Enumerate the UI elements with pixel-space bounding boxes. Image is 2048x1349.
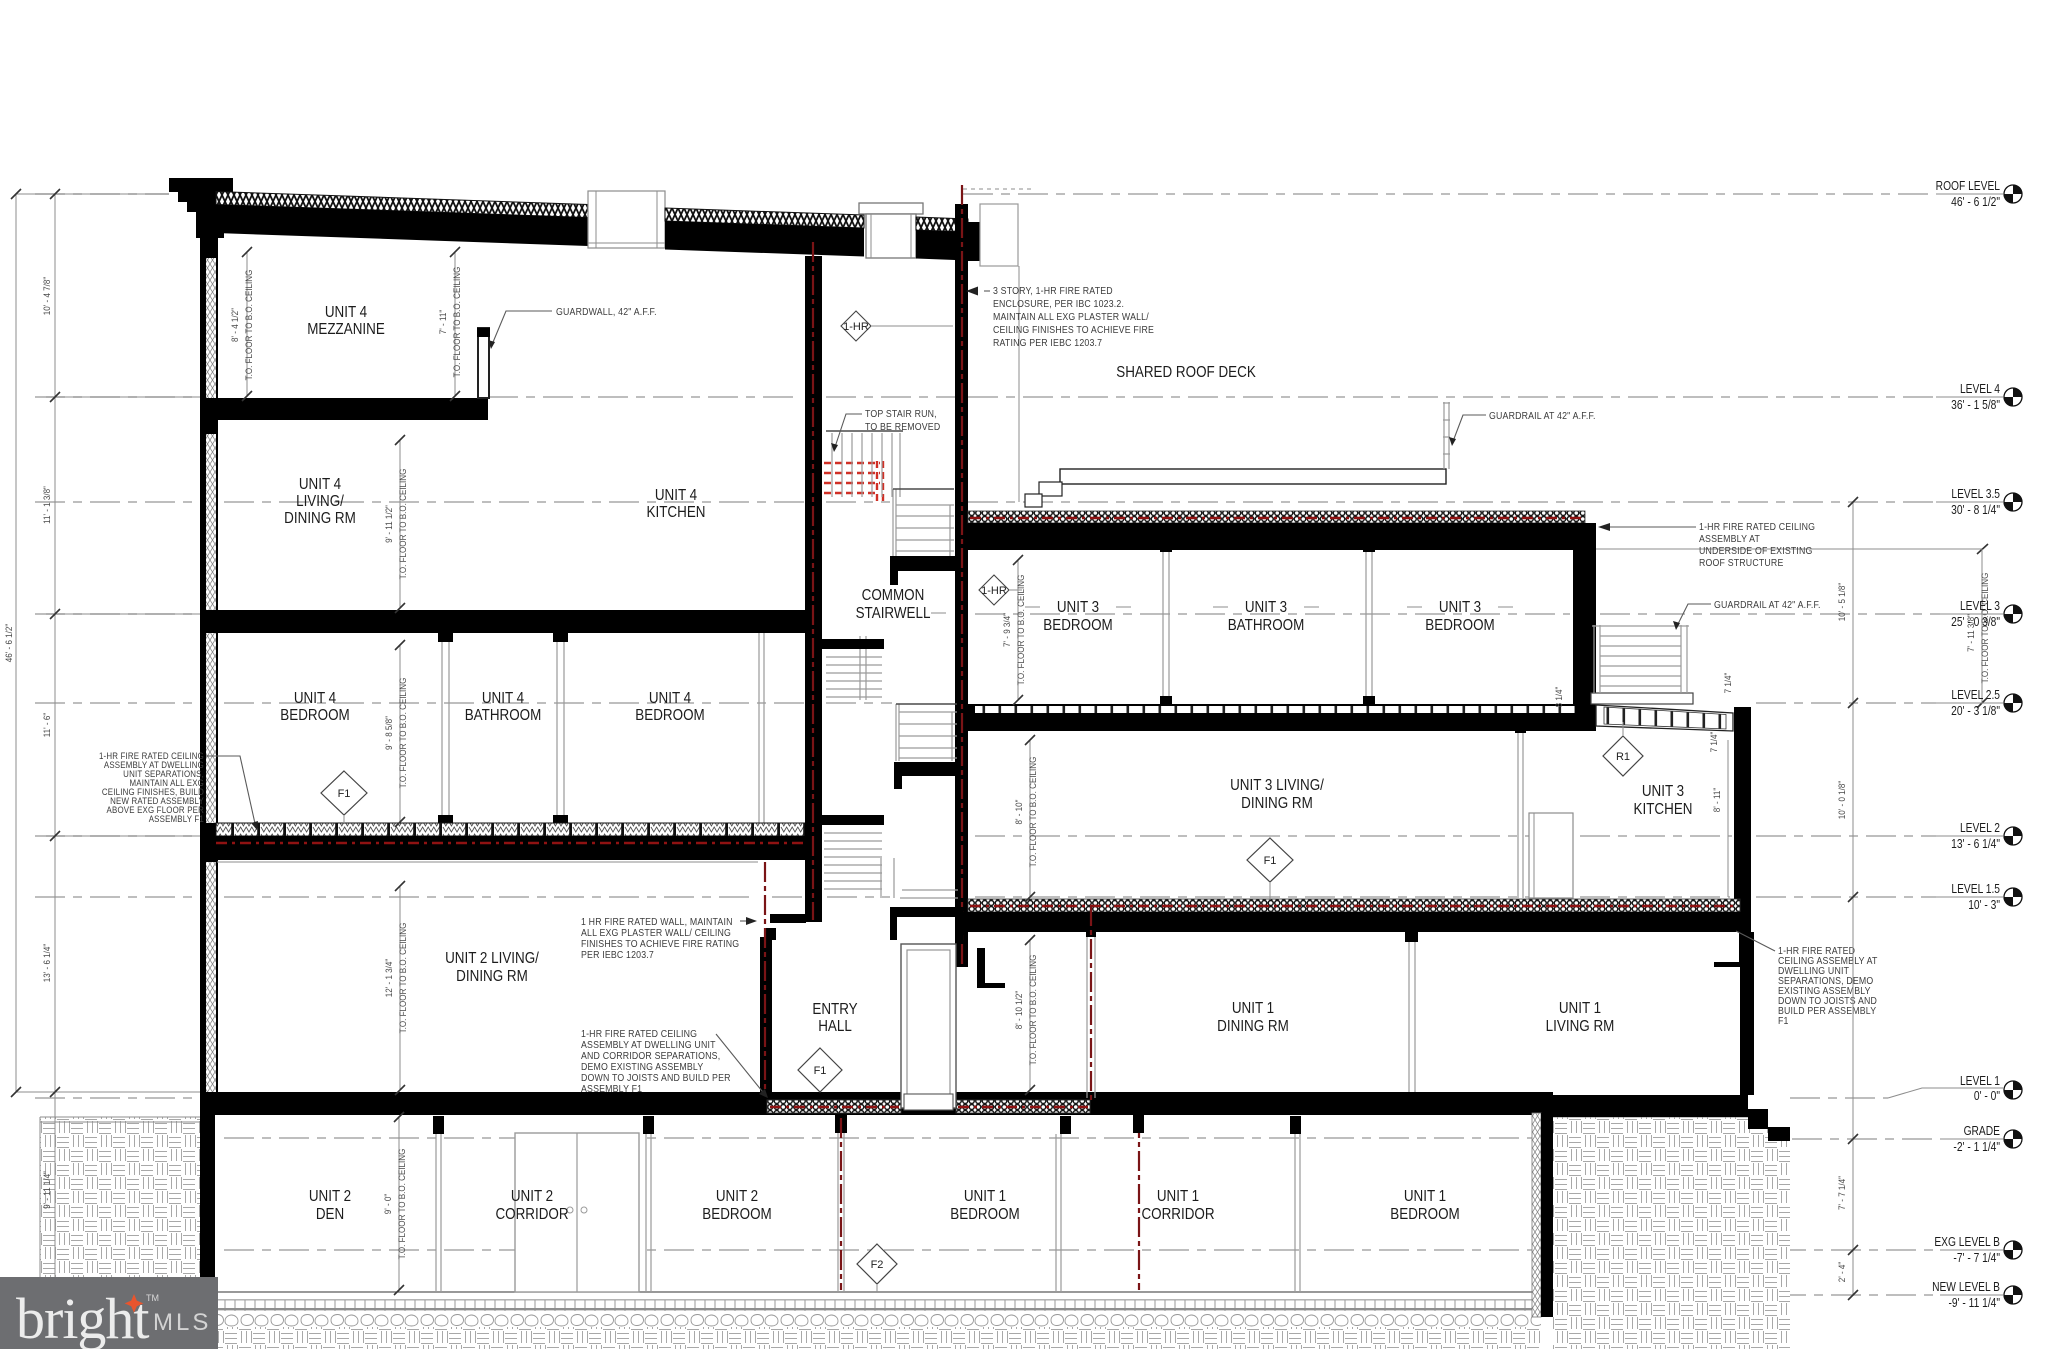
svg-text:-2' - 1 1/4": -2' - 1 1/4" [1953, 1141, 2000, 1154]
svg-text:-7' - 7 1/4": -7' - 7 1/4" [1953, 1252, 2000, 1265]
svg-text:BEDROOM: BEDROOM [1425, 617, 1494, 634]
svg-text:8' - 10": 8' - 10" [1013, 799, 1024, 824]
svg-text:LEVEL 1: LEVEL 1 [1960, 1075, 2000, 1088]
svg-text:-9' - 11 1/4": -9' - 11 1/4" [1948, 1297, 2000, 1310]
svg-text:1-HR: 1-HR [981, 585, 1007, 597]
svg-text:CEILING FINISHES TO ACHIEVE FI: CEILING FINISHES TO ACHIEVE FIRE [993, 323, 1154, 335]
svg-text:T.O. FLOOR TO B.O. CEILING: T.O. FLOOR TO B.O. CEILING [396, 1148, 407, 1259]
svg-text:TOP STAIR RUN,: TOP STAIR RUN, [865, 407, 937, 419]
svg-text:R1: R1 [1616, 751, 1630, 763]
svg-text:LEVEL 2.5: LEVEL 2.5 [1951, 689, 2000, 702]
svg-text:LEVEL 2: LEVEL 2 [1960, 822, 2000, 835]
svg-text:STAIRWELL: STAIRWELL [856, 605, 931, 622]
svg-text:13' - 6 1/4": 13' - 6 1/4" [41, 944, 52, 982]
svg-text:9' - 11 1/2": 9' - 11 1/2" [383, 505, 394, 543]
svg-text:UNIT 1: UNIT 1 [1232, 1000, 1274, 1017]
svg-text:UNIT 3: UNIT 3 [1642, 783, 1684, 800]
svg-text:ENTRY: ENTRY [812, 1001, 857, 1018]
svg-text:BATHROOM: BATHROOM [1228, 617, 1305, 634]
svg-text:UNIT 1: UNIT 1 [964, 1188, 1006, 1205]
svg-text:ROOF LEVEL: ROOF LEVEL [1936, 180, 2000, 193]
svg-text:10' - 4 7/8": 10' - 4 7/8" [41, 277, 52, 315]
svg-text:ASSEMBLY AT: ASSEMBLY AT [1699, 532, 1760, 544]
svg-text:GUARDRAIL AT 42" A.F.F.: GUARDRAIL AT 42" A.F.F. [1714, 598, 1821, 610]
svg-text:36' - 1 5/8": 36' - 1 5/8" [1951, 399, 2000, 412]
svg-text:LEVEL 3.5: LEVEL 3.5 [1951, 488, 2000, 501]
svg-text:F2: F2 [871, 1259, 884, 1271]
svg-text:UNIT 3: UNIT 3 [1439, 599, 1481, 616]
svg-text:BEDROOM: BEDROOM [635, 707, 704, 724]
svg-text:T.O. FLOOR TO B.O. CEILING: T.O. FLOOR TO B.O. CEILING [1027, 954, 1038, 1065]
svg-text:7' - 7 1/4": 7' - 7 1/4" [1836, 1176, 1847, 1210]
svg-text:46' - 6 1/2": 46' - 6 1/2" [1951, 196, 2000, 209]
svg-text:NEW LEVEL B: NEW LEVEL B [1932, 1281, 2000, 1294]
svg-text:T.O. FLOOR TO B.O. CEILING: T.O. FLOOR TO B.O. CEILING [397, 468, 408, 579]
svg-text:UNIT 4: UNIT 4 [655, 487, 697, 504]
svg-text:GRADE: GRADE [1964, 1125, 2001, 1138]
svg-text:7 1/4": 7 1/4" [1722, 673, 1733, 694]
svg-text:10' - 0 1/8": 10' - 0 1/8" [1836, 781, 1847, 819]
svg-text:7 1/4": 7 1/4" [1708, 732, 1719, 753]
svg-text:UNIT 4: UNIT 4 [299, 476, 341, 493]
svg-text:UNIT 1: UNIT 1 [1559, 1000, 1601, 1017]
svg-text:10' - 3": 10' - 3" [1968, 899, 2000, 912]
svg-text:DINING RM: DINING RM [1217, 1018, 1289, 1035]
svg-text:ALL EXG PLASTER WALL/ CEILING: ALL EXG PLASTER WALL/ CEILING [581, 926, 731, 938]
svg-text:UNIT 2 LIVING/: UNIT 2 LIVING/ [445, 950, 540, 967]
svg-text:TM: TM [146, 1293, 159, 1303]
svg-text:9' - 0": 9' - 0" [382, 1194, 393, 1215]
svg-text:7' - 9 3/4": 7' - 9 3/4" [1001, 613, 1012, 647]
svg-text:LEVEL 4: LEVEL 4 [1960, 383, 2001, 396]
svg-text:UNIT 4: UNIT 4 [325, 304, 367, 321]
svg-text:MAINTAIN ALL EXG PLASTER WALL/: MAINTAIN ALL EXG PLASTER WALL/ [993, 310, 1149, 322]
svg-text:CORRIDOR: CORRIDOR [495, 1206, 568, 1223]
svg-text:7' - 11": 7' - 11" [437, 310, 448, 334]
svg-text:UNIT 2: UNIT 2 [511, 1188, 553, 1205]
svg-text:30' - 8 1/4": 30' - 8 1/4" [1951, 504, 2000, 517]
svg-text:UNIT 3 LIVING/: UNIT 3 LIVING/ [1230, 777, 1325, 794]
svg-text:9' - 8 5/8": 9' - 8 5/8" [383, 716, 394, 750]
svg-text:LIVING RM: LIVING RM [1546, 1018, 1615, 1035]
svg-text:ASSEMBLY F1: ASSEMBLY F1 [581, 1082, 642, 1094]
svg-text:CORRIDOR: CORRIDOR [1141, 1206, 1214, 1223]
svg-text:1-HR FIRE RATED CEILING: 1-HR FIRE RATED CEILING [1699, 520, 1815, 532]
svg-text:11' - 1 3/8": 11' - 1 3/8" [41, 486, 52, 524]
svg-text:F1: F1 [1778, 1014, 1789, 1026]
svg-text:FINISHES TO ACHIEVE FIRE RATIN: FINISHES TO ACHIEVE FIRE RATING [581, 937, 739, 949]
svg-text:LIVING/: LIVING/ [296, 493, 345, 510]
svg-text:8' - 10 1/2": 8' - 10 1/2" [1013, 991, 1024, 1029]
svg-text:DEN: DEN [316, 1206, 344, 1223]
svg-text:BEDROOM: BEDROOM [702, 1206, 771, 1223]
svg-text:LEVEL 3: LEVEL 3 [1960, 600, 2000, 613]
svg-text:T.O. FLOOR TO B.O. CEILING: T.O. FLOOR TO B.O. CEILING [1015, 574, 1026, 685]
svg-text:AND CORRIDOR SEPARATIONS,: AND CORRIDOR SEPARATIONS, [581, 1049, 720, 1061]
svg-text:COMMON: COMMON [862, 587, 925, 604]
svg-text:BEDROOM: BEDROOM [1390, 1206, 1459, 1223]
svg-text:BEDROOM: BEDROOM [280, 707, 349, 724]
svg-text:HALL: HALL [818, 1018, 852, 1035]
svg-text:UNIT 1: UNIT 1 [1157, 1188, 1199, 1205]
svg-text:UNIT 4: UNIT 4 [294, 690, 336, 707]
svg-text:UNIT 3: UNIT 3 [1057, 599, 1099, 616]
svg-text:DEMO EXISTING ASSEMBLY: DEMO EXISTING ASSEMBLY [581, 1060, 704, 1072]
svg-text:8' - 4 1/2": 8' - 4 1/2" [229, 308, 240, 342]
svg-text:BEDROOM: BEDROOM [1043, 617, 1112, 634]
svg-text:T.O. FLOOR TO B.O. CEILING: T.O. FLOOR TO B.O. CEILING [397, 922, 408, 1033]
svg-text:SHARED ROOF DECK: SHARED ROOF DECK [1116, 364, 1256, 381]
svg-text:UNIT 2: UNIT 2 [716, 1188, 758, 1205]
svg-text:T.O. FLOOR TO B.O. CEILING: T.O. FLOOR TO B.O. CEILING [451, 266, 462, 377]
svg-text:ASSEMBLY F1: ASSEMBLY F1 [149, 814, 204, 825]
svg-text:DINING RM: DINING RM [1241, 795, 1313, 812]
svg-text:BEDROOM: BEDROOM [950, 1206, 1019, 1223]
svg-text:ASSEMBLY AT DWELLING UNIT: ASSEMBLY AT DWELLING UNIT [581, 1038, 716, 1050]
svg-text:1 HR FIRE RATED WALL, MAINTAIN: 1 HR FIRE RATED WALL, MAINTAIN [581, 915, 733, 927]
svg-text:9' - 11 1/4": 9' - 11 1/4" [41, 1171, 52, 1209]
svg-text:ENCLOSURE, PER IBC 1023.2.: ENCLOSURE, PER IBC 1023.2. [993, 297, 1124, 309]
svg-text:F1: F1 [338, 788, 351, 800]
svg-text:13' - 6 1/4": 13' - 6 1/4" [1951, 838, 2000, 851]
svg-text:GUARDRAIL AT 42" A.F.F.: GUARDRAIL AT 42" A.F.F. [1489, 409, 1596, 421]
svg-text:8 1/4": 8 1/4" [1553, 687, 1564, 708]
svg-text:LEVEL 1.5: LEVEL 1.5 [1951, 883, 2000, 896]
svg-text:BUILD PER ASSEMBLY: BUILD PER ASSEMBLY [1778, 1004, 1877, 1016]
svg-text:UNIT 4: UNIT 4 [649, 690, 691, 707]
svg-text:MEZZANINE: MEZZANINE [307, 321, 385, 338]
svg-text:20' - 3 1/8": 20' - 3 1/8" [1951, 705, 2000, 718]
svg-text:1-HR FIRE RATED CEILING: 1-HR FIRE RATED CEILING [581, 1027, 697, 1039]
svg-text:T.O. FLOOR TO B.O. CEILING: T.O. FLOOR TO B.O. CEILING [397, 677, 408, 788]
svg-text:12' - 1 3/4": 12' - 1 3/4" [383, 959, 394, 997]
svg-text:8' - 11": 8' - 11" [1711, 788, 1722, 812]
svg-text:F1: F1 [814, 1065, 827, 1077]
svg-text:46' - 6 1/2": 46' - 6 1/2" [3, 624, 14, 662]
svg-text:ROOF STRUCTURE: ROOF STRUCTURE [1699, 556, 1783, 568]
svg-text:2' - 4": 2' - 4" [1836, 1262, 1847, 1283]
svg-text:GUARDWALL, 42" A.F.F.: GUARDWALL, 42" A.F.F. [556, 305, 657, 317]
svg-text:0' - 0": 0' - 0" [1974, 1090, 2000, 1103]
svg-text:T.O. FLOOR TO B.O. CEILING: T.O. FLOOR TO B.O. CEILING [1027, 756, 1038, 867]
svg-text:T.O. FLOOR TO B.O. CEILING: T.O. FLOOR TO B.O. CEILING [243, 269, 254, 380]
svg-text:UNDERSIDE OF EXISTING: UNDERSIDE OF EXISTING [1699, 544, 1813, 556]
svg-text:25' - 0 3/8": 25' - 0 3/8" [1951, 616, 2000, 629]
svg-text:MLS: MLS [153, 1309, 211, 1336]
svg-text:bright: bright [16, 1286, 149, 1349]
svg-text:RATING PER IEBC 1203.7: RATING PER IEBC 1203.7 [993, 336, 1102, 348]
svg-text:UNIT 4: UNIT 4 [482, 690, 524, 707]
svg-text:DOWN TO JOISTS AND BUILD PER: DOWN TO JOISTS AND BUILD PER [581, 1071, 731, 1083]
svg-text:11' - 6": 11' - 6" [41, 713, 52, 737]
svg-text:PER IEBC 1203.7: PER IEBC 1203.7 [581, 948, 654, 960]
svg-text:1-HR: 1-HR [843, 321, 869, 333]
svg-text:TO BE REMOVED: TO BE REMOVED [865, 420, 940, 432]
svg-text:UNIT 1: UNIT 1 [1404, 1188, 1446, 1205]
svg-text:DINING RM: DINING RM [284, 510, 356, 527]
svg-text:BATHROOM: BATHROOM [465, 707, 542, 724]
svg-text:10' - 5 1/8": 10' - 5 1/8" [1836, 583, 1847, 621]
svg-text:3 STORY, 1-HR FIRE RATED: 3 STORY, 1-HR FIRE RATED [993, 284, 1113, 296]
svg-text:EXG LEVEL B: EXG LEVEL B [1934, 1236, 2000, 1249]
svg-text:UNIT 2: UNIT 2 [309, 1188, 351, 1205]
svg-text:F1: F1 [1264, 855, 1277, 867]
svg-text:DINING RM: DINING RM [456, 968, 528, 985]
svg-text:KITCHEN: KITCHEN [647, 504, 706, 521]
svg-text:KITCHEN: KITCHEN [1634, 801, 1693, 818]
svg-text:UNIT 3: UNIT 3 [1245, 599, 1287, 616]
